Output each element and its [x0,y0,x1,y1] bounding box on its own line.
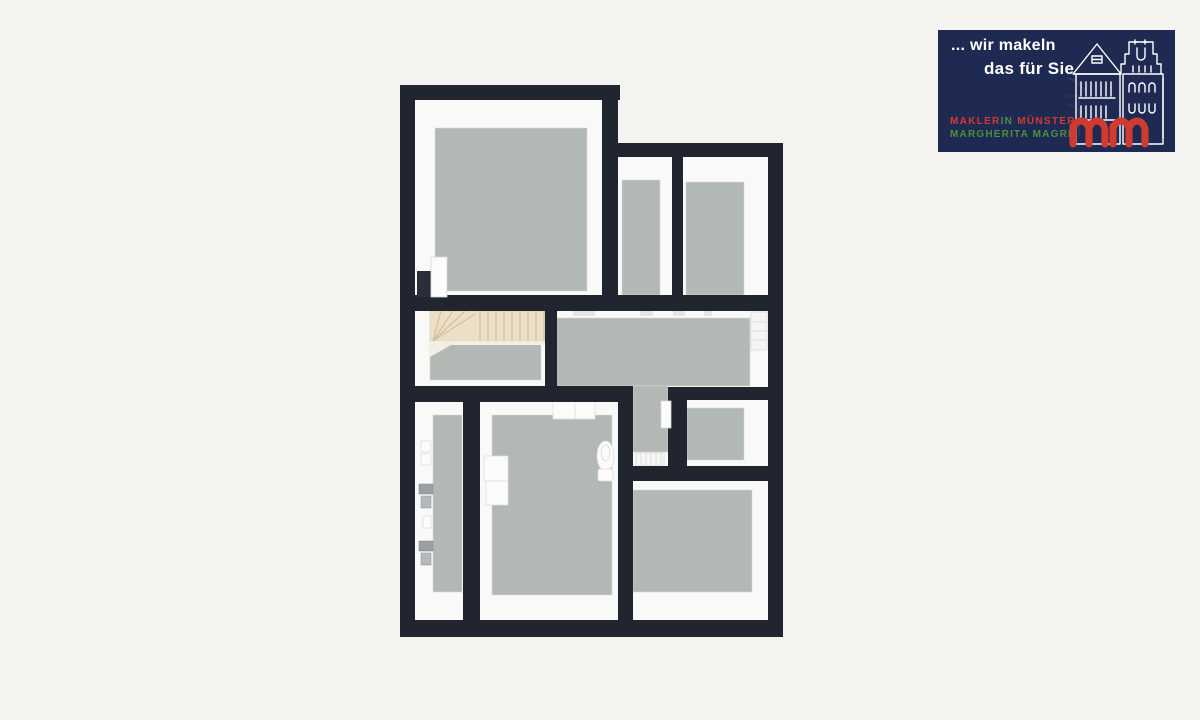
cabinet-left [484,456,508,505]
wall-smallroom-bottom [633,466,783,481]
logo-buildings-icon [1067,34,1171,148]
logo-brand-line-1: MAKLERINMÜNSTER [950,116,1076,127]
brand-in: IN [1001,116,1014,127]
radiator-corridor [636,453,664,466]
broker-logo: ... wir makeln das für Sie MAKLERINMÜNST… [938,30,1175,152]
door-middle-right [661,401,671,428]
wall-outer-top [400,85,620,100]
logo-brand-line-2: MARGHERITA MAGRI [950,129,1072,140]
wall-bath-right [618,400,633,627]
wall-topright-top [618,143,783,157]
wall-lower-band [400,386,633,402]
wall-stairhall-right [545,297,557,399]
wall-utility-divider [463,398,480,627]
mm-monogram-icon [1073,121,1145,144]
logo-tagline-2: das für Sie [984,59,1074,79]
open-door-top-left [431,257,447,297]
wall-outer-bottom [400,620,783,637]
cabinet-top [553,400,595,419]
wall-room1-right [602,85,618,308]
brand-makler: MAKLER [950,116,1001,127]
radiator-hallway [751,312,767,350]
wall-outer-left [400,85,415,637]
toilet [597,441,614,481]
logo-tagline-1: ... wir makeln [951,37,1056,55]
wall-topright-divider [672,157,683,297]
utility-connections [419,441,433,565]
wall-mid-band [400,295,783,311]
